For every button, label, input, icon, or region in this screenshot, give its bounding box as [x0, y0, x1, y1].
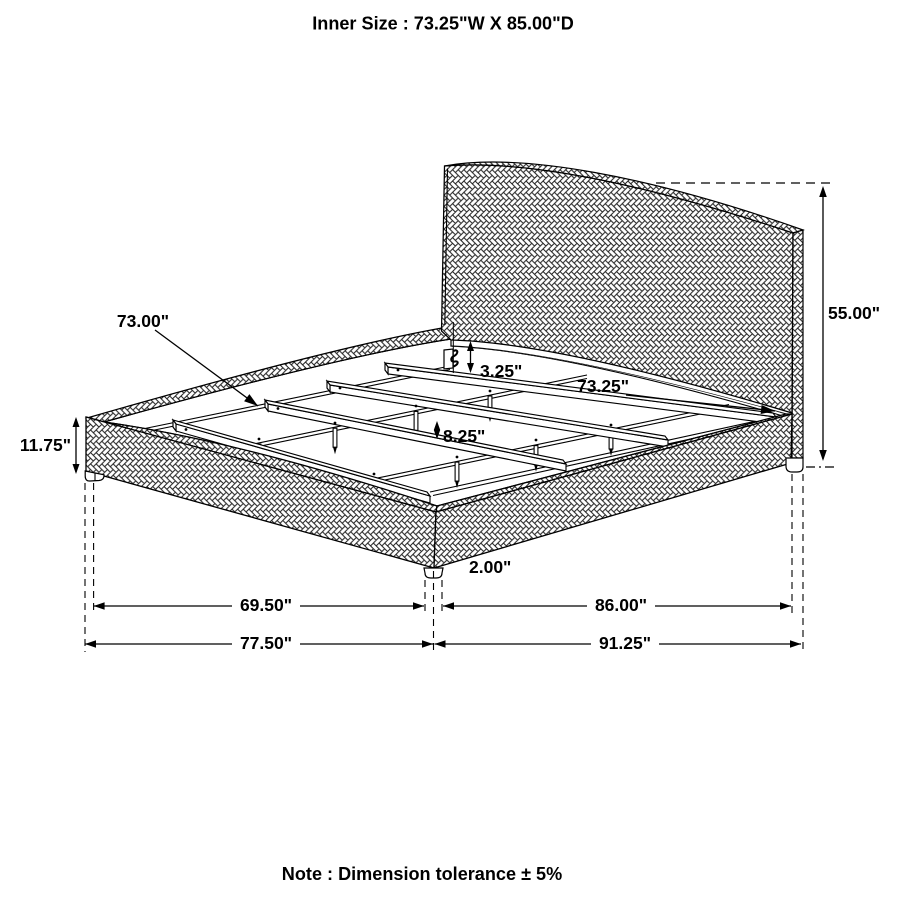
svg-text:Inner Size : 73.25"W X 85.00"D: Inner Size : 73.25"W X 85.00"D	[312, 14, 574, 34]
svg-text:86.00": 86.00"	[595, 595, 647, 615]
svg-text:3.25": 3.25"	[480, 361, 522, 381]
svg-text:73.25": 73.25"	[577, 376, 629, 396]
svg-text:69.50": 69.50"	[240, 595, 292, 615]
svg-text:Note : Dimension tolerance ± 5: Note : Dimension tolerance ± 5%	[282, 864, 562, 884]
svg-text:55.00": 55.00"	[828, 303, 880, 323]
svg-text:2.00": 2.00"	[469, 557, 511, 577]
svg-text:73.00": 73.00"	[117, 311, 169, 331]
svg-text:91.25": 91.25"	[599, 633, 651, 653]
svg-text:8.25": 8.25"	[443, 426, 485, 446]
svg-text:77.50": 77.50"	[240, 633, 292, 653]
svg-text:11.75": 11.75"	[20, 435, 71, 455]
